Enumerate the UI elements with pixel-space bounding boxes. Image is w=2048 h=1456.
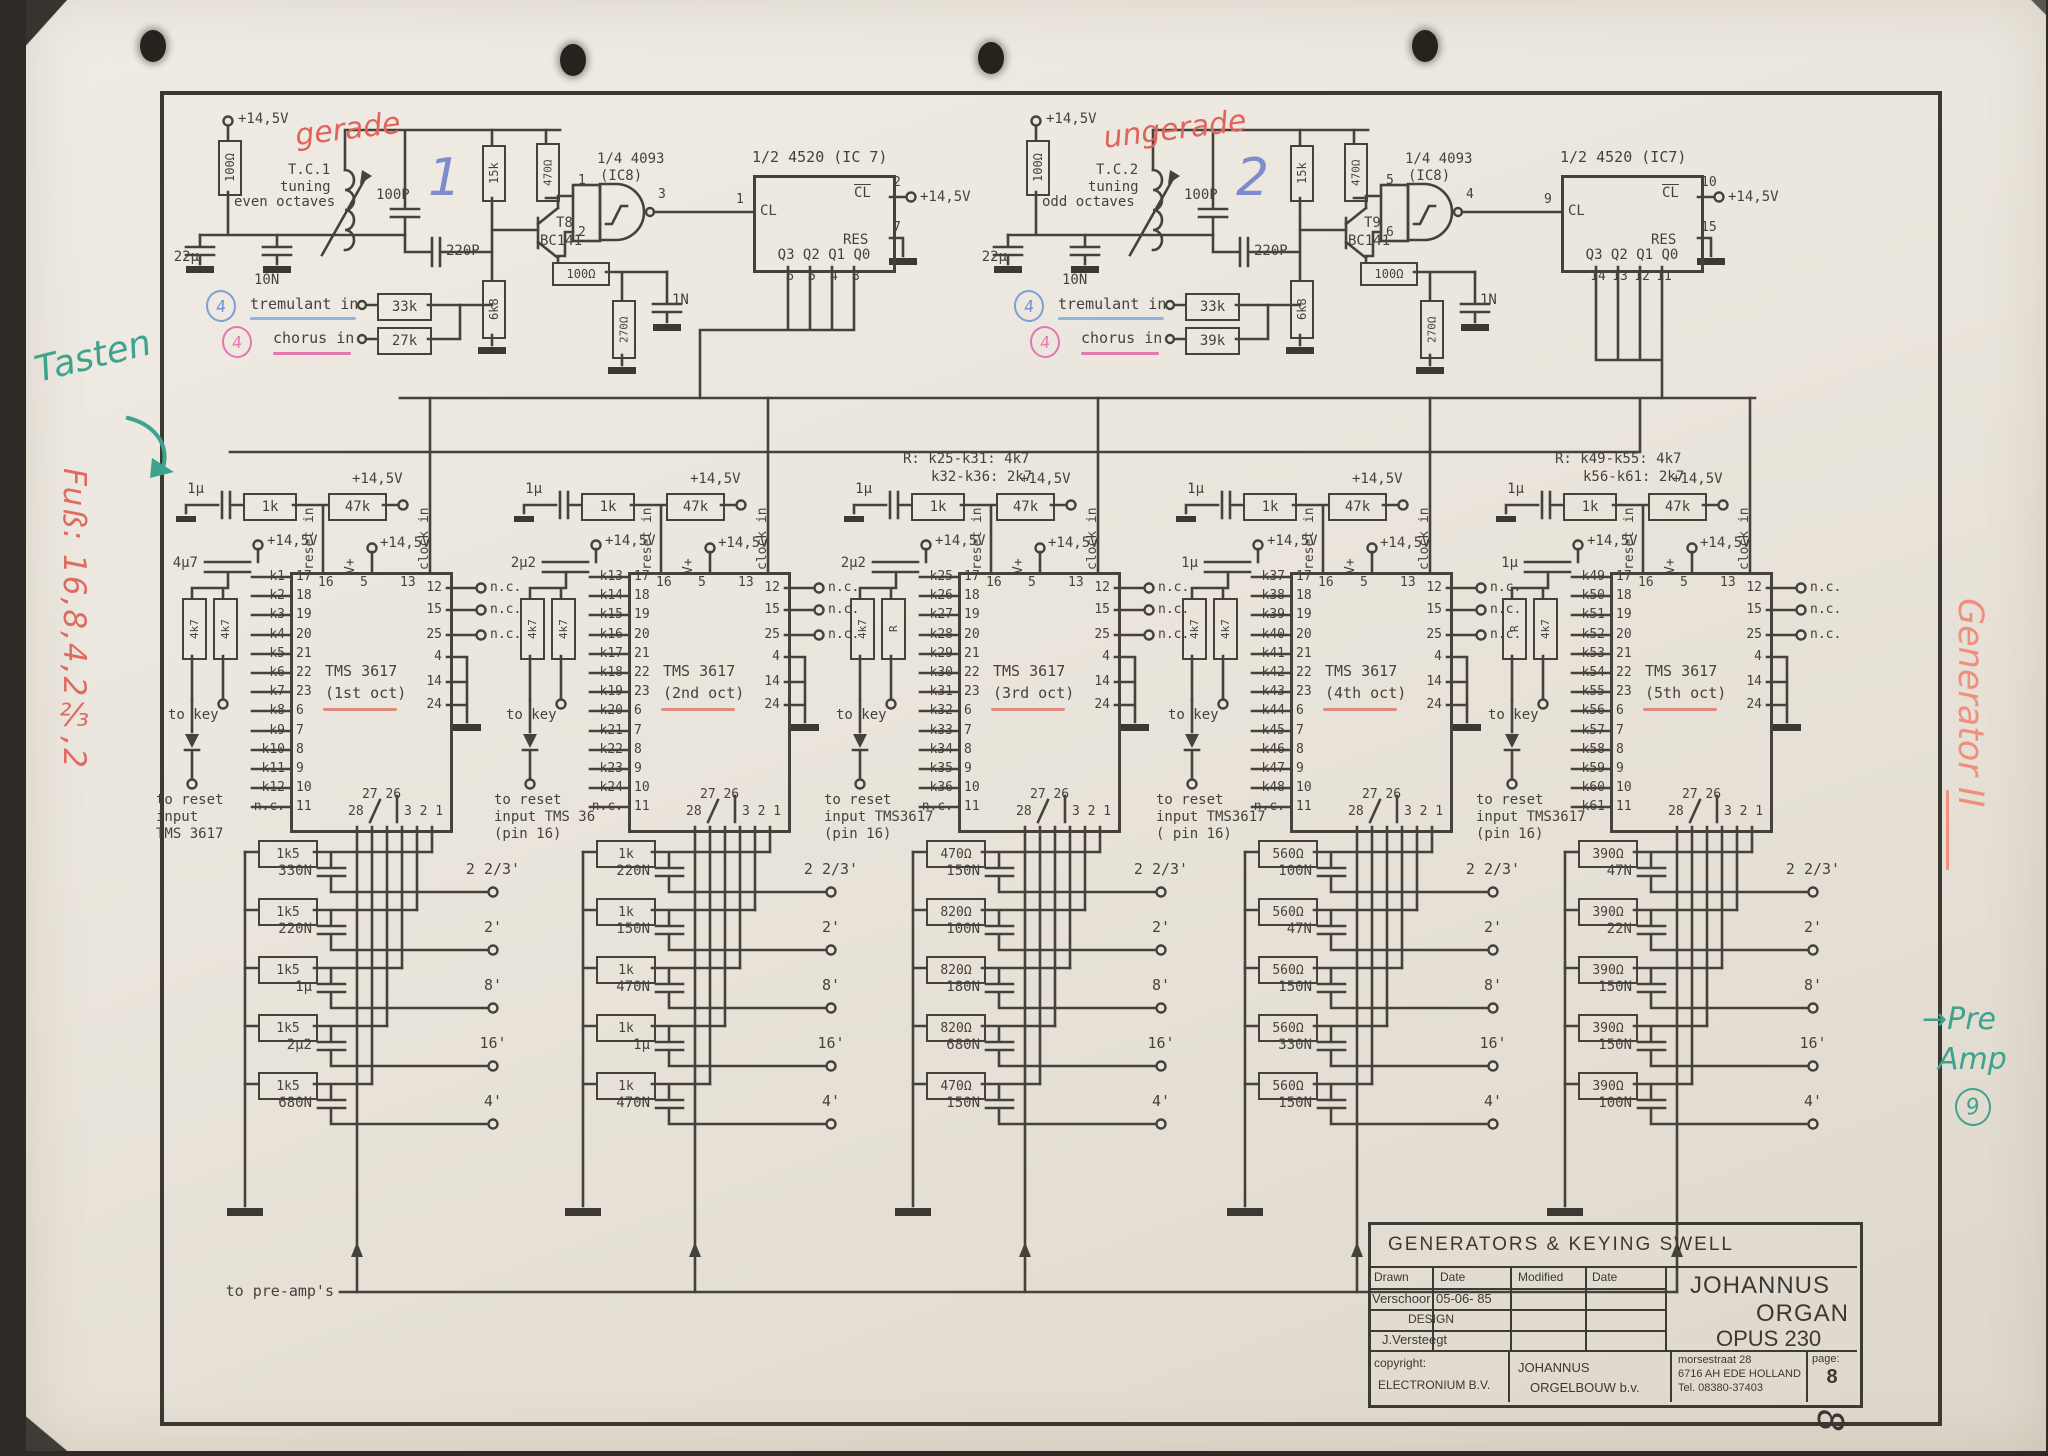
counter-supply: +14,5V [1728,190,1779,205]
divider [1665,1266,1667,1350]
resistor: 1k [243,493,297,521]
bottom-pins: 28 [1348,805,1364,819]
bottom-pins: 28 [1016,805,1032,819]
brand-line1: JOHANNUS [1690,1272,1830,1300]
bottom-pins: 27 26 [1682,788,1721,802]
key-resistor-note: k32-k36: 2k7 [931,470,1032,485]
address-line2: 6716 AH EDE HOLLAND [1678,1368,1801,1380]
gate-name: 1/4 4093 [1405,152,1472,167]
divider [1585,1266,1587,1350]
nc-label: n.c. [490,581,521,595]
to-key-label: to key [836,708,887,723]
pin-number: 15 [1730,603,1762,617]
vplus-label: V+ [1012,548,1026,574]
nc-label: n.c. [1810,581,1841,595]
key-label: k7 [205,685,285,699]
pin-number: 14 [1410,675,1442,689]
counter-clbar: CL [854,186,871,201]
footage-label: 16' [1453,1036,1533,1052]
key-label: k31 [873,685,953,699]
brand-line2: ORGAN [1756,1300,1849,1328]
trimcap-range: odd octaves [1042,195,1135,210]
resistor: 6k8 [482,280,506,339]
gate-pin: 1 [578,174,586,188]
divider [1508,1350,1510,1402]
to-reset-label: to reset [1156,793,1223,808]
resistor: 1k [1243,493,1297,521]
chorus-label: chorus in [1081,331,1162,347]
ladder-cap: 150N [1560,980,1632,995]
chip-octave: (5th oct) [1645,686,1726,702]
page-label: page: [1812,1353,1840,1365]
pin-number: 10 [634,781,650,795]
pin-number: 11 [296,800,312,814]
key-label: k25 [873,570,953,584]
nc-label: n.c. [490,628,521,642]
cap-label: 1µ [1480,482,1524,497]
key-label: k46 [1205,743,1285,757]
key-label: k37 [1205,570,1285,584]
drawing-title: GENERATORS & KEYING SWELL [1388,1234,1734,1256]
vplus-label: V+ [1664,548,1678,574]
pin-number: 11 [1616,800,1632,814]
chorus-resistor: 27k [377,327,432,355]
pin-number: 24 [410,698,442,712]
ladder-cap: 1µ [578,1038,650,1053]
footage-label: 2' [453,920,533,936]
counter-q-pin: 14 [1587,270,1609,284]
counter-clbar-pin: 10 [1701,176,1717,190]
to-reset-label: input TMS 36 [494,810,595,825]
resistor: 1k [581,493,635,521]
brand-line3: OPUS 230 [1716,1326,1821,1352]
key-label: k42 [1205,666,1285,680]
footage-label: 4' [1773,1094,1853,1110]
footage-label: 2 2/3' [1453,862,1533,878]
ladder-cap: 100N [1560,1096,1632,1111]
pin-number: 12 [748,581,780,595]
key-label: k41 [1205,647,1285,661]
nc-label: n.c. [828,581,859,595]
ladder-cap: 150N [1240,980,1312,995]
counter-cl-pin: 1 [736,193,744,207]
footage-label: 2 2/3' [1773,862,1853,878]
chorus-underline [273,352,351,355]
pin-number: 24 [748,698,780,712]
hand-note-preamp1: →Pre [1922,1002,1996,1037]
divider [1806,1350,1808,1402]
footage-label: 16' [453,1036,533,1052]
key-resistor: 4k7 [520,598,545,660]
pin-number: 11 [964,800,980,814]
pin-number: 18 [296,589,312,603]
resistor: 270Ω [1420,300,1444,359]
vplus-label: V+ [344,548,358,574]
to-reset-label: TMS 3617 [156,827,223,842]
ladder-cap: 330N [240,864,312,879]
pin-number: 10 [1616,781,1632,795]
key-resistor-note: k56-k61: 2k7 [1583,470,1684,485]
pin-number: 18 [1296,589,1312,603]
key-label: k30 [873,666,953,680]
bottom-pins: 27 26 [1362,788,1401,802]
key-label: k15 [543,608,623,622]
pin-number: 20 [1296,628,1312,642]
page-number: 8 [1812,1366,1852,1389]
key-label: k55 [1525,685,1605,699]
pin-number: 10 [964,781,980,795]
counter-q-row: Q3 Q2 Q1 Q0 [1572,248,1692,263]
pin-number: 24 [1078,698,1110,712]
pin-number: 8 [1296,743,1304,757]
gate-ic: (IC8) [1408,169,1450,184]
key-label: k40 [1205,628,1285,642]
key-label: k19 [543,685,623,699]
footage-label: 8' [1453,978,1533,994]
key-label: k57 [1525,724,1605,738]
nc-label: n.c. [1158,581,1189,595]
bottom-pins: 28 [1668,805,1684,819]
to-reset-label: (pin 16) [1476,827,1543,842]
cap-label: 1µ [1160,482,1204,497]
footage-label: 2 2/3' [1121,862,1201,878]
supply-label: +14,5V [1352,472,1403,487]
footage-label: 2 2/3' [453,862,533,878]
key-label: k14 [543,589,623,603]
octave-underline-red [661,708,735,711]
cap-label: 100P [1184,188,1218,203]
cap-label: 220P [446,244,480,259]
pin-number: 14 [410,675,442,689]
pin-number: 12 [1730,581,1762,595]
pin-number: 8 [1616,743,1624,757]
nc-label: n.c. [1490,581,1521,595]
gate-pin: 3 [658,188,666,202]
pin-number: 17 [296,570,312,584]
pin-number: 7 [964,724,972,738]
cap-label: 22µ [155,250,199,265]
pin-number: 11 [634,800,650,814]
divider [1670,1350,1672,1402]
resistor: 15k [1290,145,1314,202]
pin-number: 10 [296,781,312,795]
pin-number: 7 [296,724,304,738]
pin-number: 19 [634,608,650,622]
to-reset-label: to reset [824,793,891,808]
key-resistor: 4k7 [1182,598,1207,660]
divider [1510,1266,1512,1350]
to-reset-label: (pin 16) [494,827,561,842]
bottom-pins: 28 [686,805,702,819]
key-label: k26 [873,589,953,603]
divider [1368,1266,1857,1268]
supply-label: +14,5V [238,112,289,127]
pin-number: 12 [1410,581,1442,595]
counter-cl: CL [1568,204,1585,219]
chip-octave: (4th oct) [1325,686,1406,702]
pin-number: 24 [1410,698,1442,712]
trimcap-name: T.C.2 [1096,163,1138,178]
key-label: k27 [873,608,953,622]
chip-octave: (2nd oct) [663,686,744,702]
key-label: k9 [205,724,285,738]
supply-label: +14,5V [690,472,741,487]
pin-number: 23 [296,685,312,699]
key-label: k47 [1205,762,1285,776]
ladder-cap: 1µ [240,980,312,995]
to-reset-label: input TMS3617 [824,810,934,825]
pin-number: 14 [748,675,780,689]
octave-underline-red [1323,708,1397,711]
pin-number: 25 [1078,628,1110,642]
pin-number: 7 [1296,724,1304,738]
pin-number: 22 [296,666,312,680]
pin-number: 20 [296,628,312,642]
chip-name: TMS 3617 [325,664,397,680]
clock-in-label: clock in [756,502,770,570]
key-label: k11 [205,762,285,776]
pin-number: 6 [1616,704,1624,718]
key-label: k49 [1525,570,1605,584]
ladder-cap: 100N [1240,864,1312,879]
counter-q-pin: 13 [1609,270,1631,284]
preamp-label: to pre-amp's [206,1284,334,1300]
counter-q-pin: 6 [779,270,801,284]
col-drawn: Drawn [1374,1270,1409,1284]
cap-label: 1N [1480,293,1497,308]
bottom-pins: 27 26 [362,788,401,802]
pin-number: 7 [634,724,642,738]
pin-number: 22 [1616,666,1632,680]
pin-number: 18 [634,589,650,603]
chip-name: TMS 3617 [1325,664,1397,680]
transistor-type: BC141 [540,234,582,249]
key-label: k43 [1205,685,1285,699]
key-label: k23 [543,762,623,776]
footage-label: 4' [1121,1094,1201,1110]
pin-number: 24 [1730,698,1762,712]
pin-number: 9 [634,762,642,776]
footage-label: 2' [1773,920,1853,936]
pin-number: 6 [634,704,642,718]
bottom-pins: 27 26 [700,788,739,802]
drawn-date: 05-06- 85 [1436,1291,1492,1306]
pin-number: 17 [634,570,650,584]
key-label: k5 [205,647,285,661]
reset-in-label: reset in [641,508,655,570]
hand-note-number: 2 [1236,148,1269,208]
pin-number: 4 [1730,650,1762,664]
cap-label: 1µ [1470,556,1518,571]
pin-number: 18 [1616,589,1632,603]
pin-number: 4 [410,650,442,664]
reset-in-label: reset in [971,508,985,570]
key-label: k2 [205,589,285,603]
supply-label: +14,5V [352,472,403,487]
cap-label: 4µ7 [150,556,198,571]
to-reset-label: to reset [494,793,561,808]
copyright-firm: ELECTRONIUM B.V. [1378,1378,1490,1392]
pin-number: 15 [1078,603,1110,617]
pin-number: 9 [1616,762,1624,776]
ladder-cap: 150N [908,1096,980,1111]
chip-name: TMS 3617 [1645,664,1717,680]
pin-number: 4 [748,650,780,664]
ladder-cap: 100N [908,922,980,937]
pin-number: 21 [1296,647,1312,661]
pin-number: 14 [1078,675,1110,689]
pin-number: 19 [296,608,312,622]
pin-number: 21 [1616,647,1632,661]
resistor: 270Ω [612,300,636,359]
cap-label: 2µ2 [488,556,536,571]
pin-number: 20 [634,628,650,642]
reset-in-label: reset in [303,508,317,570]
gate-name: 1/4 4093 [597,152,664,167]
trimcap-function: tuning [1088,180,1139,195]
key-resistor-note: R: k25-k31: 4k7 [903,452,1029,467]
copyright-label: copyright: [1374,1356,1426,1370]
pin-number: 20 [964,628,980,642]
key-label: k54 [1525,666,1605,680]
nc-label: n.c. [1810,628,1841,642]
resistor: 47k [996,493,1055,521]
cap-label: 1µ [498,482,542,497]
hand-note-generator: Generator II [1950,598,1990,808]
hand-note-number: 1 [428,148,461,208]
pin-number: 23 [1616,685,1632,699]
cap-label: 2µ2 [818,556,866,571]
resistor: 15k [482,145,506,202]
key-label: k38 [1205,589,1285,603]
footage-label: 8' [1121,978,1201,994]
pin-number: 15 [410,603,442,617]
cap-label: 10N [254,273,279,288]
counter-q-pin: 4 [823,270,845,284]
to-key-label: to key [1488,708,1539,723]
footage-label: 2 2/3' [791,862,871,878]
cap-label: 1µ [1150,556,1198,571]
pin-number: 18 [964,589,980,603]
counter-clbar-pin: 2 [893,176,901,190]
pin-number: 12 [410,581,442,595]
cap-label: 1µ [828,482,872,497]
address-line1: morsestraat 28 [1678,1354,1751,1366]
gate-pin: 5 [1386,174,1394,188]
key-label: k59 [1525,762,1605,776]
key-label: k13 [543,570,623,584]
gate-pin: 4 [1466,188,1474,202]
pin-number: 21 [964,647,980,661]
transistor-name: T8 [556,216,573,231]
chip-octave: (1st oct) [325,686,406,702]
footage-label: 8' [453,978,533,994]
resistor: 47k [1648,493,1707,521]
key-label: k29 [873,647,953,661]
key-label: k50 [1525,589,1605,603]
key-label: k4 [205,628,285,642]
col-date: Date [1440,1270,1465,1284]
pin-number: 14 [1730,675,1762,689]
resistor: 1k [1563,493,1617,521]
cap-label: 10N [1062,273,1087,288]
bottom-pins: 3 2 1 [1724,805,1763,819]
pin-number: 25 [748,628,780,642]
tremulant-resistor: 33k [377,293,432,321]
key-label: k58 [1525,743,1605,757]
cap-label: 100P [376,188,410,203]
reset-in-label: reset in [1623,508,1637,570]
pin-number: 11 [1296,800,1312,814]
bottom-pins: 3 2 1 [1404,805,1443,819]
chorus-resistor: 39k [1185,327,1240,355]
ladder-cap: 150N [908,864,980,879]
chip-octave: (3rd oct) [993,686,1074,702]
ladder-cap: 470N [578,1096,650,1111]
to-key-label: to key [168,708,219,723]
to-reset-label: to reset [156,793,223,808]
transistor-name: T9 [1364,216,1381,231]
transistor-type: BC141 [1348,234,1390,249]
bottom-pins: 3 2 1 [742,805,781,819]
pin-number: 12 [1078,581,1110,595]
footage-label: 2' [1121,920,1201,936]
counter-cl: CL [760,204,777,219]
cap-label: 1N [672,293,689,308]
key-label: k18 [543,666,623,680]
ladder-cap: 220N [240,922,312,937]
cap-label: 220P [1254,244,1288,259]
counter-supply: +14,5V [920,190,971,205]
to-reset-label: input [156,810,198,825]
counter-cl-pin: 9 [1544,193,1552,207]
octave-underline-red [1643,708,1717,711]
key-label: k3 [205,608,285,622]
footage-label: 4' [1453,1094,1533,1110]
counter-q-pin: 12 [1631,270,1653,284]
key-label: k21 [543,724,623,738]
to-reset-label: ( pin 16) [1156,827,1232,842]
footage-label: 16' [791,1036,871,1052]
ladder-cap: 680N [240,1096,312,1111]
octave-underline-red [323,708,397,711]
key-label: k45 [1205,724,1285,738]
counter-clbar: CL [1662,186,1679,201]
nc-label: n.c. [490,603,521,617]
chorus-underline [1081,352,1159,355]
resistor: 100Ω [1360,262,1418,286]
pin-number: 4 [1410,650,1442,664]
pin-number: 8 [296,743,304,757]
key-resistor: 4k7 [850,598,875,660]
resistor: 6k8 [1290,280,1314,339]
pin-number: 9 [964,762,972,776]
pin-number: 21 [634,647,650,661]
to-reset-label: (pin 16) [824,827,891,842]
octave-underline-red [991,708,1065,711]
vplus-label: V+ [682,548,696,574]
counter-q-pin: 11 [1653,270,1675,284]
clock-in-label: clock in [418,502,432,570]
bottom-pins: 3 2 1 [404,805,443,819]
clock-in-label: clock in [1418,502,1432,570]
key-label: k10 [205,743,285,757]
resistor: 1k [911,493,965,521]
reset-in-label: reset in [1303,508,1317,570]
pin-number: 20 [1616,628,1632,642]
key-label: k22 [543,743,623,757]
to-reset-label: to reset [1476,793,1543,808]
